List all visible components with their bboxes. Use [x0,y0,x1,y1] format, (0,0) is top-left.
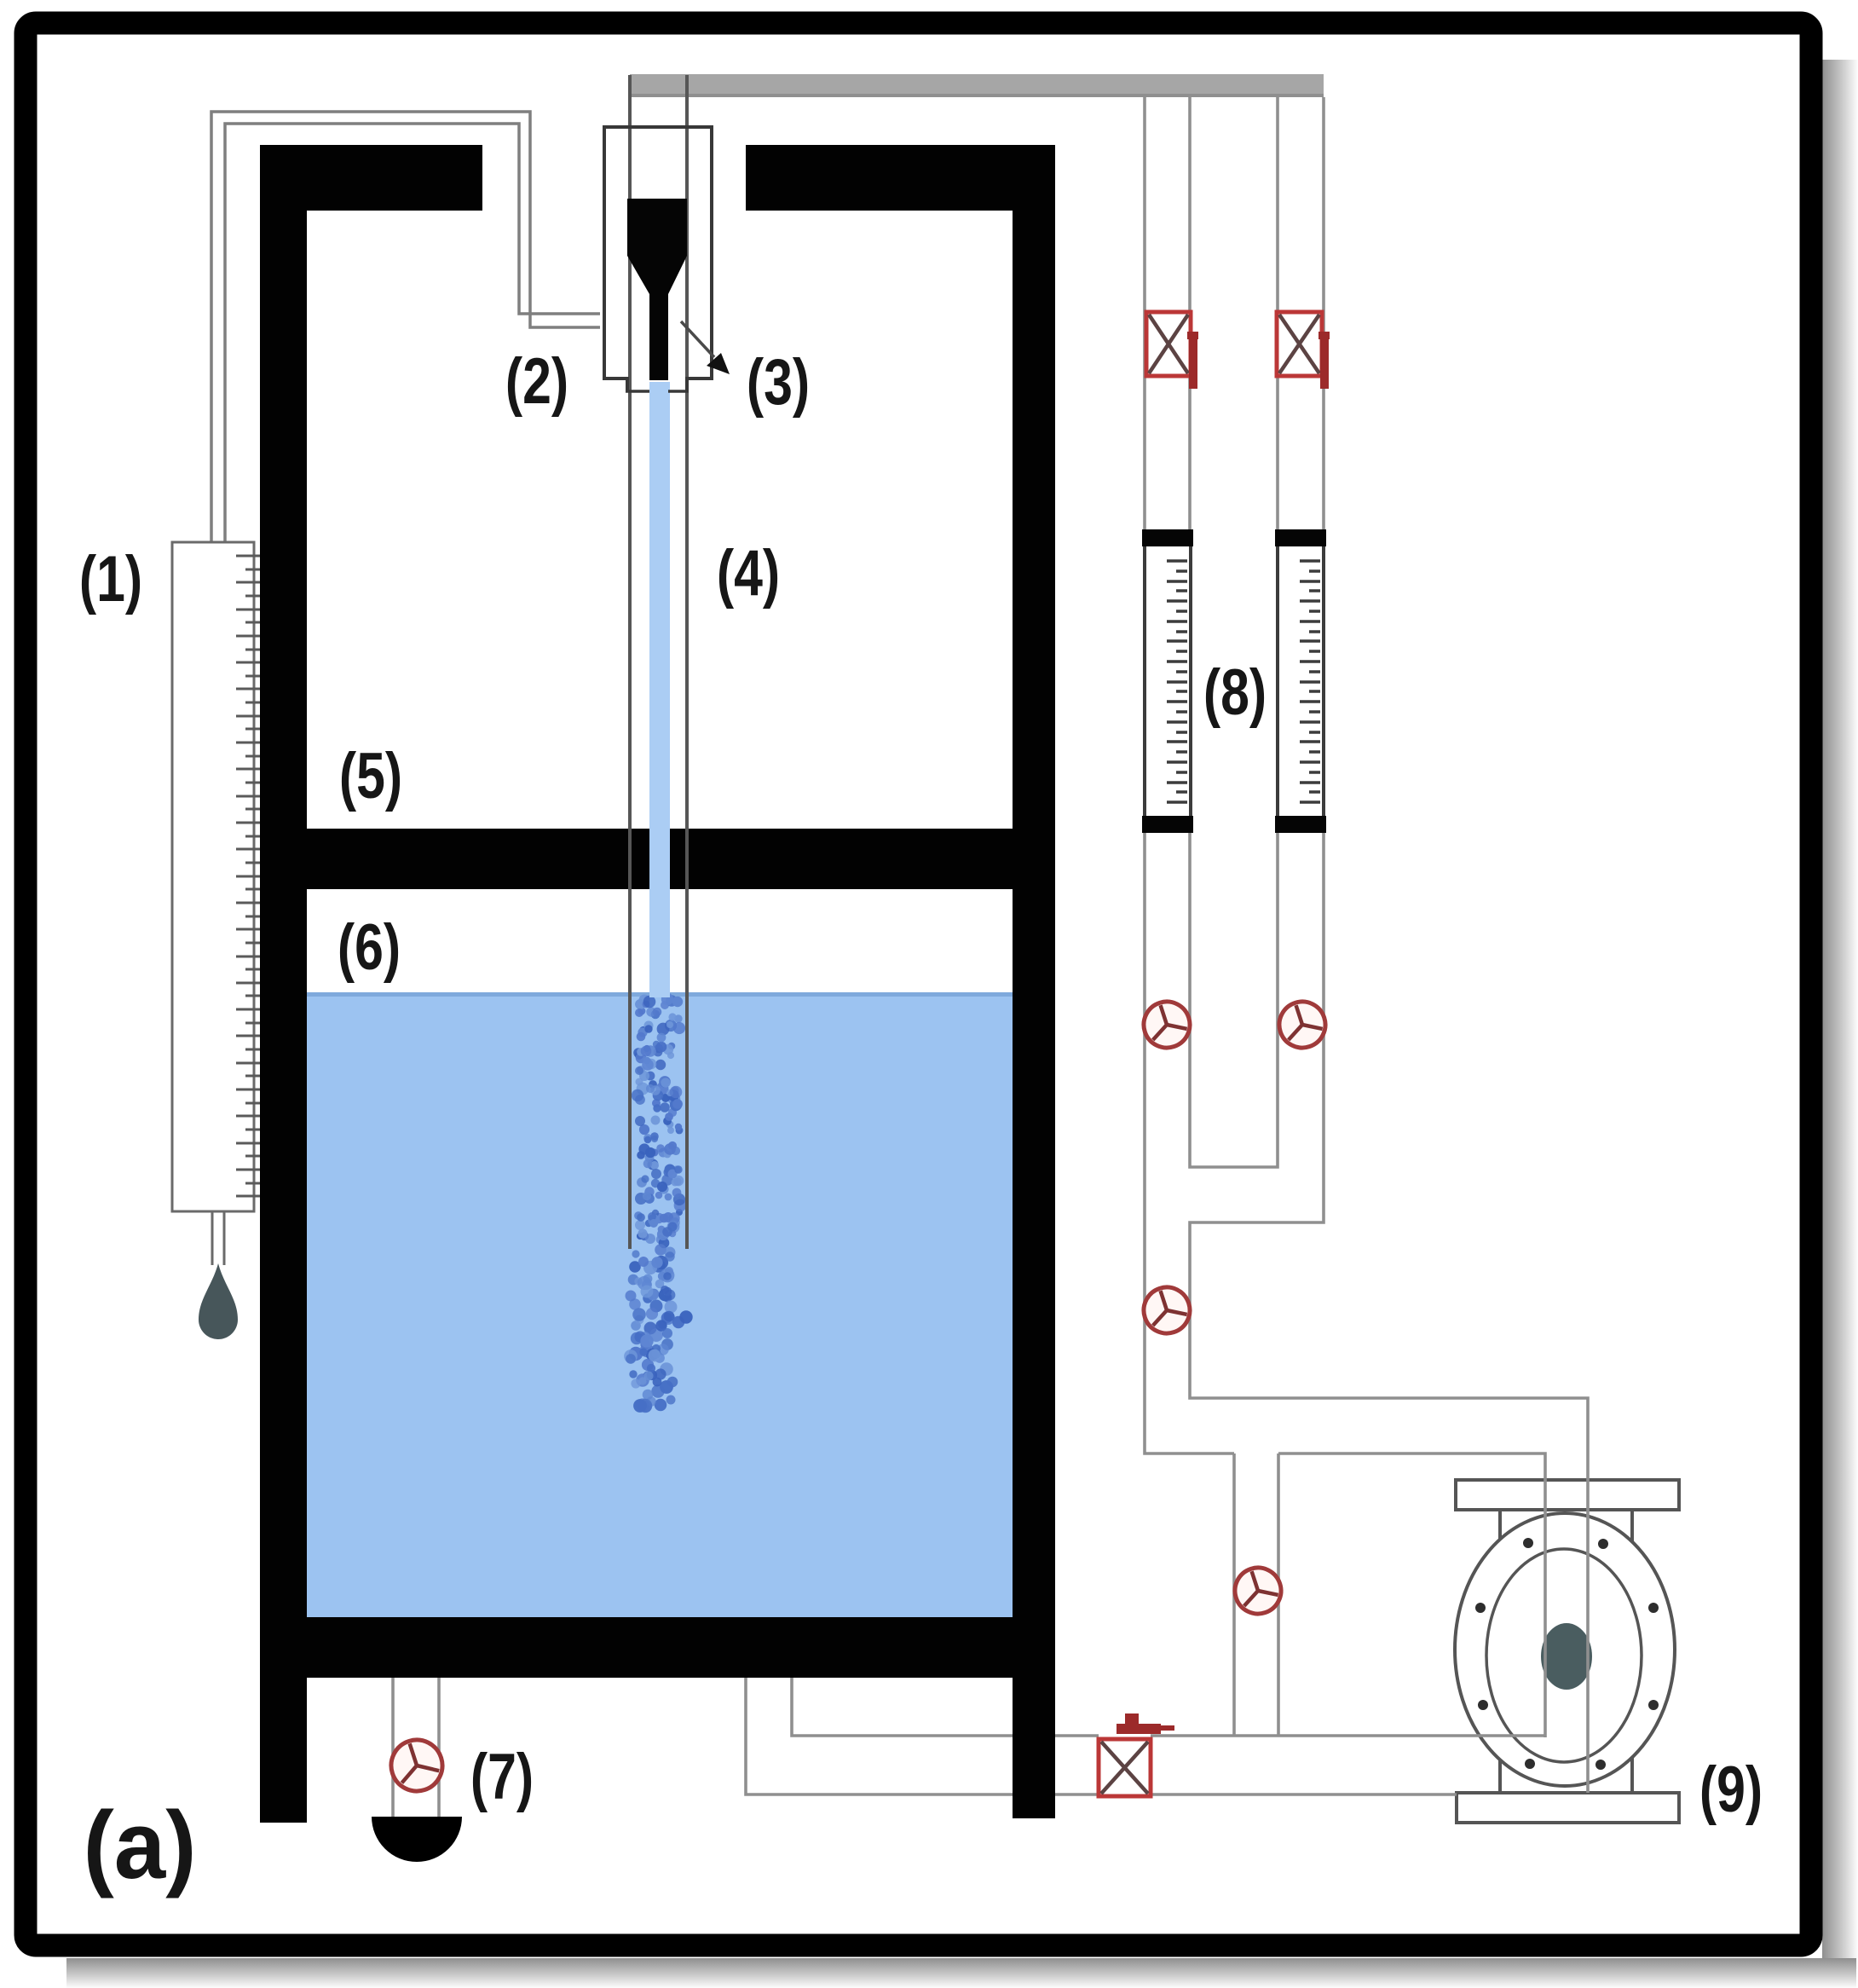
svg-text:(5): (5) [339,740,402,812]
svg-text:(1): (1) [79,543,142,615]
svg-text:(3): (3) [747,346,810,419]
svg-text:(7): (7) [470,1741,534,1813]
svg-text:(a): (a) [84,1793,197,1899]
svg-text:(6): (6) [338,911,401,984]
svg-text:(9): (9) [1699,1754,1763,1826]
svg-text:(2): (2) [505,345,568,418]
svg-text:(8): (8) [1203,656,1267,729]
svg-text:(4): (4) [717,537,780,610]
